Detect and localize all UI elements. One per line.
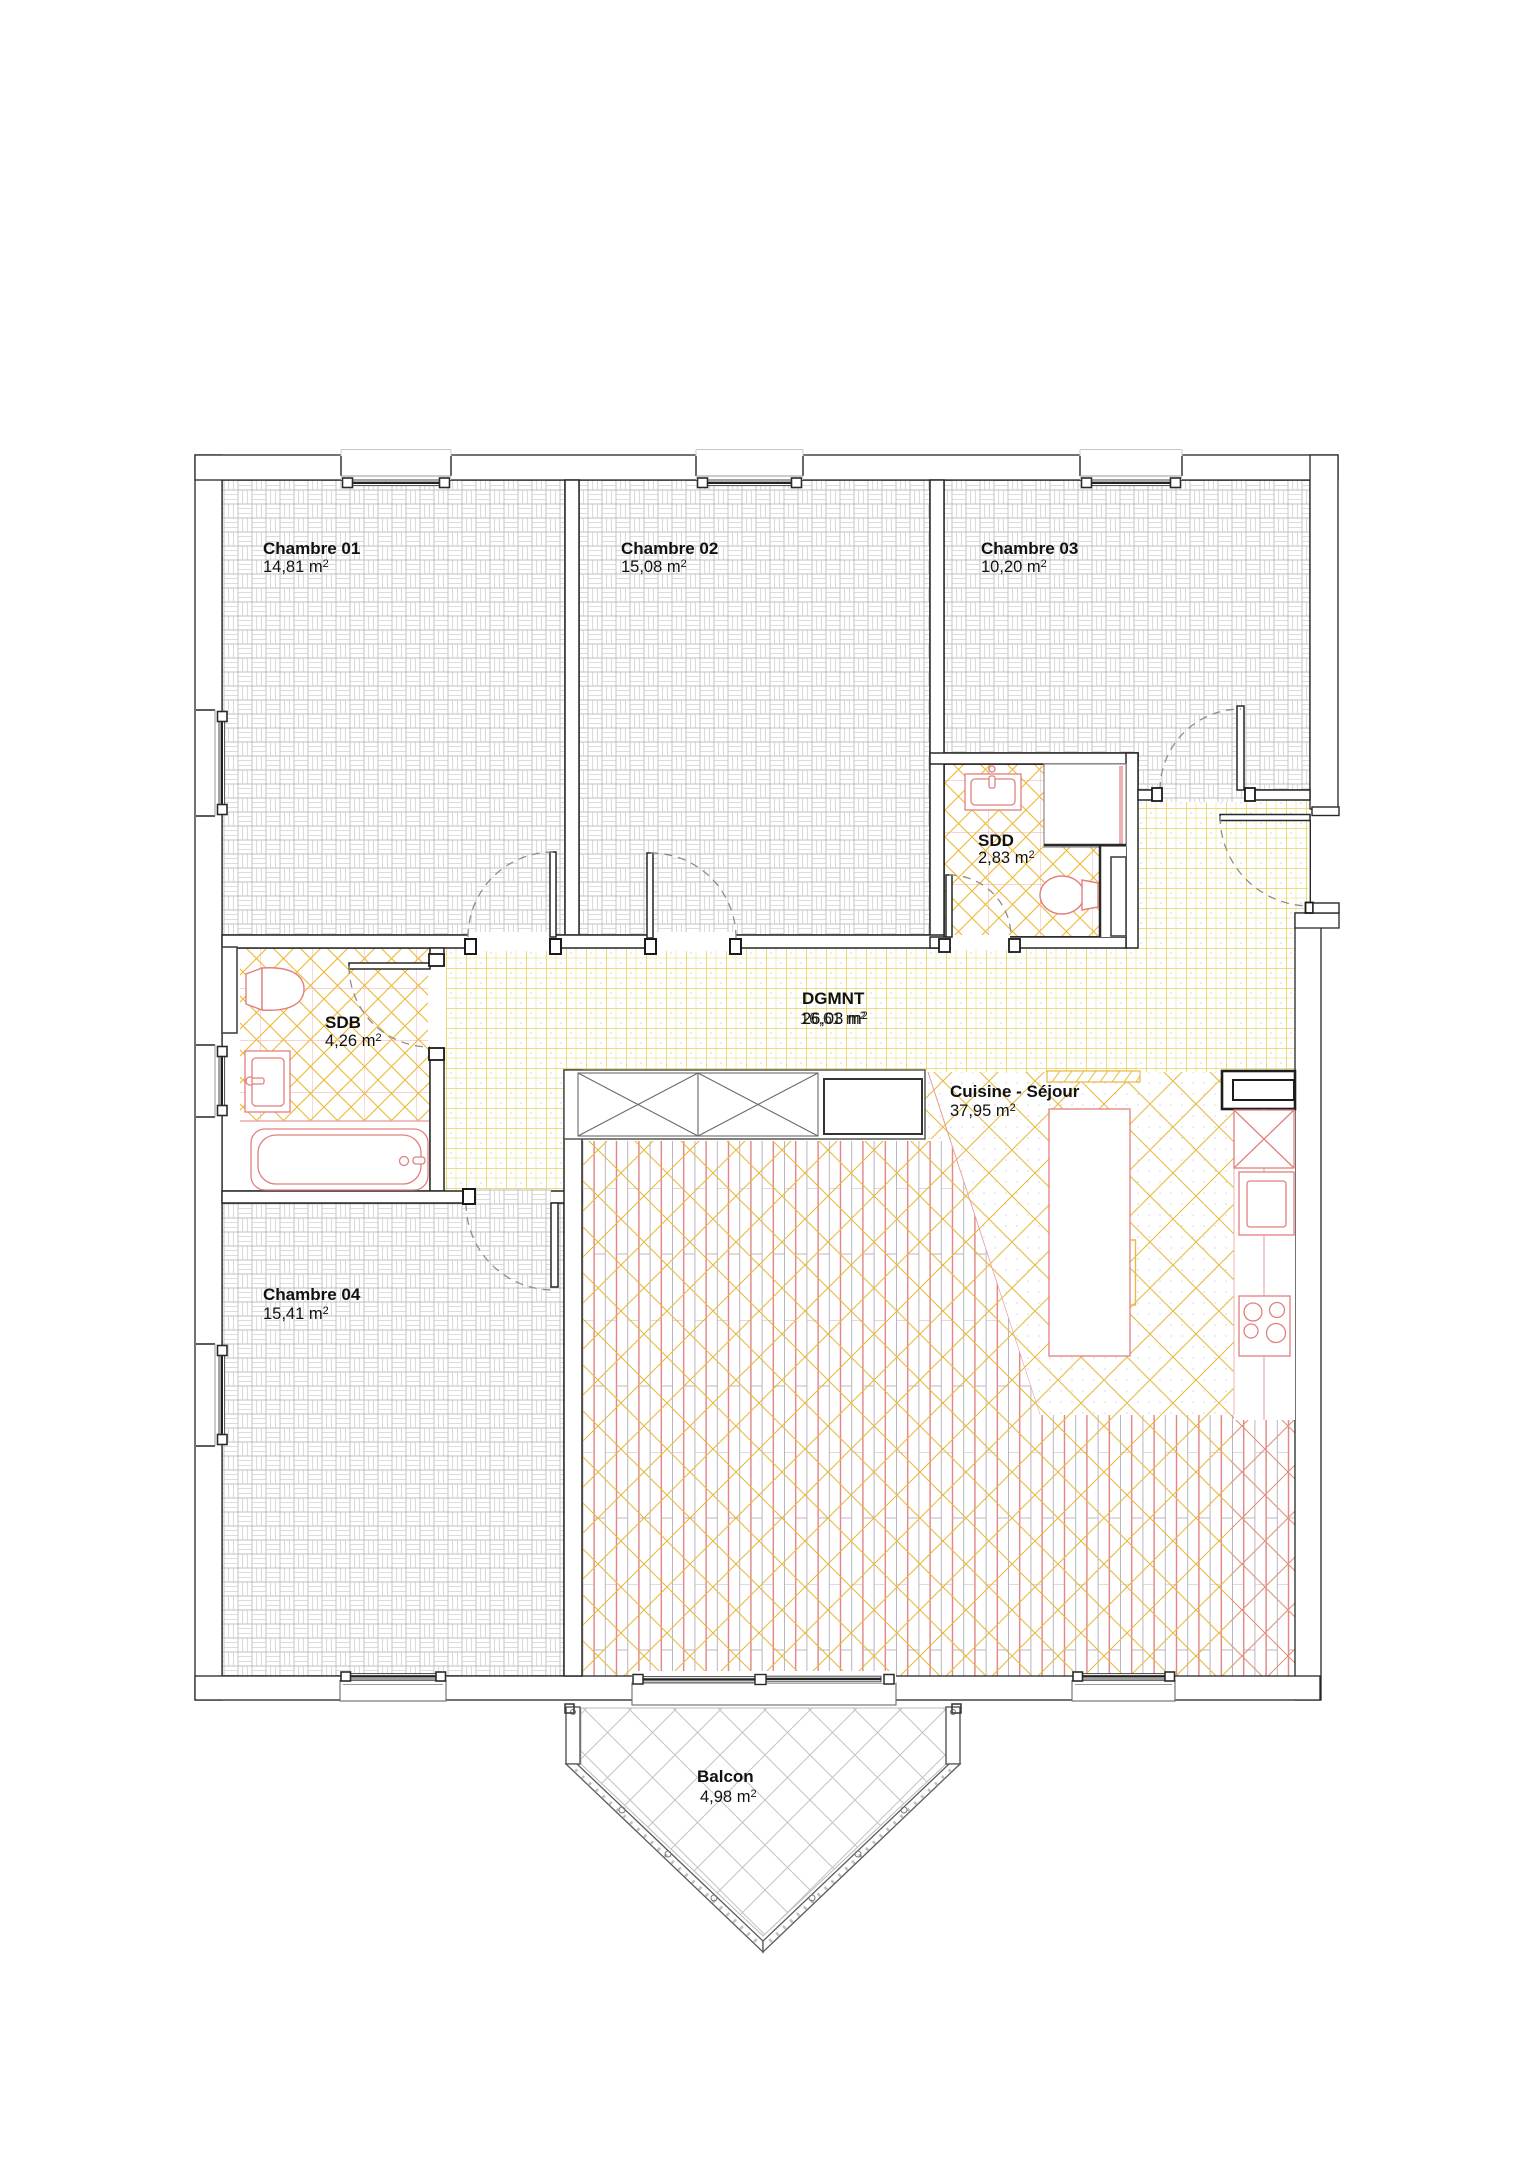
svg-text:Cuisine - Séjour: Cuisine - Séjour bbox=[950, 1082, 1080, 1101]
svg-text:Chambre 04: Chambre 04 bbox=[263, 1285, 361, 1304]
svg-text:Chambre 01: Chambre 01 bbox=[263, 539, 360, 558]
svg-text:Chambre 02: Chambre 02 bbox=[621, 539, 718, 558]
svg-text:15,41 m2: 15,41 m2 bbox=[263, 1305, 329, 1323]
svg-text:4,98 m2: 4,98 m2 bbox=[700, 1788, 757, 1806]
svg-text:10,20 m2: 10,20 m2 bbox=[981, 558, 1047, 576]
svg-text:Balcon: Balcon bbox=[697, 1767, 754, 1786]
svg-text:15,08 m2: 15,08 m2 bbox=[621, 558, 687, 576]
svg-text:16,61 m2: 16,61 m2 bbox=[800, 1010, 866, 1028]
svg-text:4,26 m2: 4,26 m2 bbox=[325, 1032, 382, 1050]
svg-text:14,81 m2: 14,81 m2 bbox=[263, 558, 329, 576]
svg-text:SDD: SDD bbox=[978, 831, 1014, 850]
svg-text:SDB: SDB bbox=[325, 1013, 361, 1032]
svg-text:DGMNT: DGMNT bbox=[802, 989, 865, 1008]
svg-text:2,83 m2: 2,83 m2 bbox=[978, 849, 1035, 867]
svg-text:Chambre 03: Chambre 03 bbox=[981, 539, 1078, 558]
svg-text:37,95 m2: 37,95 m2 bbox=[950, 1102, 1016, 1120]
